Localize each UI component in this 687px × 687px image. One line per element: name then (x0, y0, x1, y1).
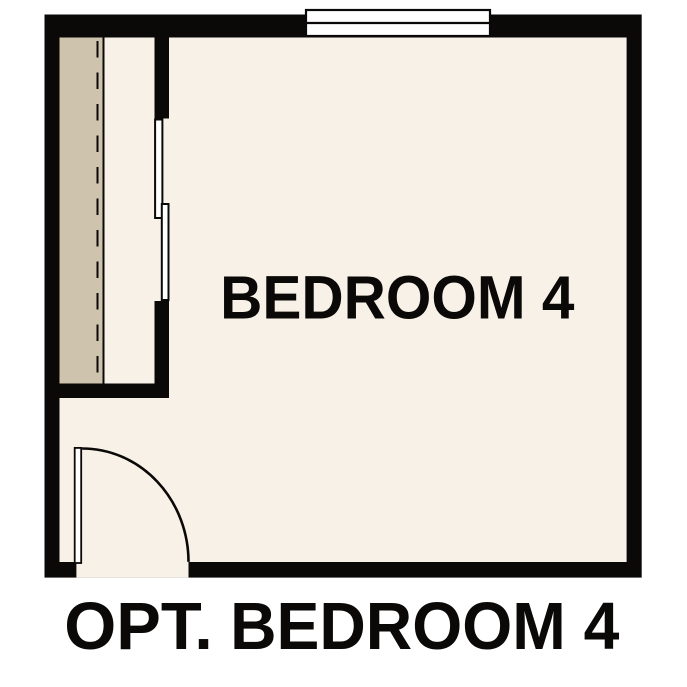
svg-text:OPT.: OPT. (64, 589, 213, 664)
svg-text:BEDROOM 4: BEDROOM 4 (220, 263, 574, 331)
svg-text:BEDROOM 4: BEDROOM 4 (230, 589, 619, 664)
